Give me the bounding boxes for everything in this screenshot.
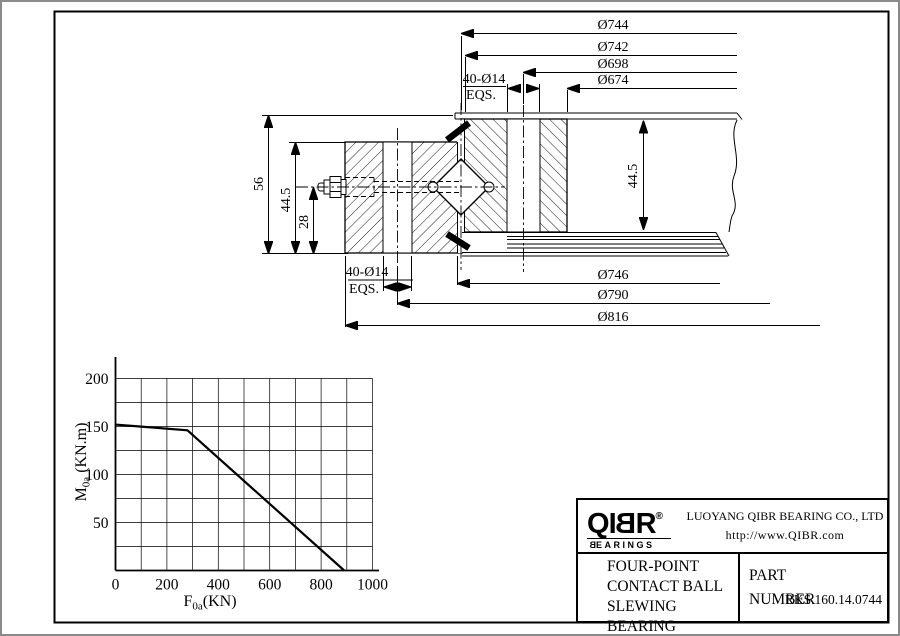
x-tick-label: 200	[155, 577, 179, 594]
bolt-note-bottom: EQS.	[349, 282, 379, 297]
bolt-spec-top: 40-Ø14	[463, 72, 506, 87]
product-line-1: FOUR-POINT	[607, 557, 738, 577]
bearing-cross-section	[296, 103, 742, 272]
brand-wordmark: QIBR®	[587, 503, 683, 538]
bolt-spec-bottom: 40-Ø14	[346, 265, 389, 280]
x-tick-label: 600	[258, 577, 282, 594]
break-line	[729, 120, 737, 232]
dim-label-744: Ø744	[597, 18, 628, 33]
dim-label-742: Ø742	[597, 40, 628, 55]
dim-label-28: 28	[297, 215, 312, 229]
y-axis-title: M0a (KN.m)	[73, 423, 93, 502]
registered-mark: ®	[656, 511, 663, 522]
engineering-drawing-sheet: Ø744 Ø742 Ø698 Ø674 40-Ø14 EQS. 56 44.5 …	[0, 0, 900, 636]
product-name: FOUR-POINT CONTACT BALL SLEWING BEARING	[578, 554, 740, 621]
y-tick-label: 200	[85, 371, 109, 388]
title-block: QIBR® BEARINGS LUOYANG QIBR BEARING CO.,…	[576, 498, 889, 623]
x-tick-label: 800	[309, 577, 333, 594]
y-tick-label: 50	[93, 515, 109, 532]
bolt-note-top: EQS.	[466, 88, 496, 103]
dim-label-790: Ø790	[597, 288, 628, 303]
dim-label-44-5-left: 44.5	[279, 188, 294, 213]
qibr-logo: QIBR® BEARINGS	[587, 503, 683, 550]
title-block-header-row: QIBR® BEARINGS LUOYANG QIBR BEARING CO.,…	[578, 500, 887, 554]
dim-label-674: Ø674	[597, 73, 628, 88]
title-block-detail-row: FOUR-POINT CONTACT BALL SLEWING BEARING …	[578, 554, 887, 621]
dim-label-698: Ø698	[597, 57, 628, 72]
company-website: http://www.QIBR.com	[683, 528, 887, 543]
product-line-3: SLEWING BEARING	[607, 597, 738, 636]
part-number-cell: PART NUMBER RKS.160.14.0744	[740, 554, 887, 621]
x-tick-label: 400	[207, 577, 231, 594]
company-name: LUOYANG QIBR BEARING CO., LTD	[683, 509, 887, 524]
x-tick-label: 0	[112, 577, 120, 594]
x-axis-title: F0a(KN)	[183, 593, 236, 613]
dim-label-746: Ø746	[597, 268, 628, 283]
load-curve	[116, 425, 345, 571]
part-number: RKS.160.14.0744	[785, 592, 882, 608]
dim-label-56: 56	[252, 177, 267, 191]
x-tick-label: 1000	[357, 577, 388, 594]
company-info: LUOYANG QIBR BEARING CO., LTD http://www…	[683, 509, 887, 543]
load-chart: 0200400600800100050100150200	[85, 357, 388, 594]
dim-label-44-5-right: 44.5	[626, 164, 641, 189]
dim-label-816: Ø816	[597, 310, 628, 325]
product-line-2: CONTACT BALL	[607, 577, 738, 597]
